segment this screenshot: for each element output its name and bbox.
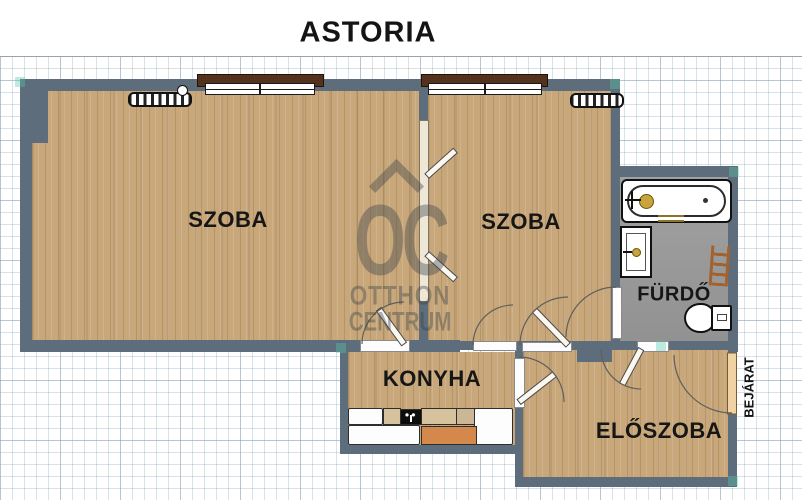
kitchen-hall-door-leaf <box>517 372 556 404</box>
label-entrance: BEJÁRAT <box>735 351 763 423</box>
label-kitchen: KONYHA <box>383 366 481 392</box>
room-bathroom-door-arc <box>566 287 616 337</box>
hall-room-door-leaf <box>532 308 570 347</box>
floor-plan-canvas: ASTORIA <box>0 0 802 500</box>
entrance-door-arc <box>674 355 732 413</box>
entrance-text: BEJÁRAT <box>742 357 757 417</box>
double-door-leaf-upper <box>425 148 457 178</box>
label-left-room: SZOBA <box>188 207 268 233</box>
room-kitchen-door-arc <box>473 305 513 345</box>
label-right-room: SZOBA <box>481 209 561 235</box>
bathroom-hall-door-leaf <box>620 348 644 386</box>
label-hall: ELŐSZOBA <box>596 418 722 444</box>
plan-title: ASTORIA <box>300 17 437 50</box>
watermark-line2: CENTRUM <box>349 307 452 338</box>
label-bathroom: FÜRDŐ <box>637 284 711 307</box>
